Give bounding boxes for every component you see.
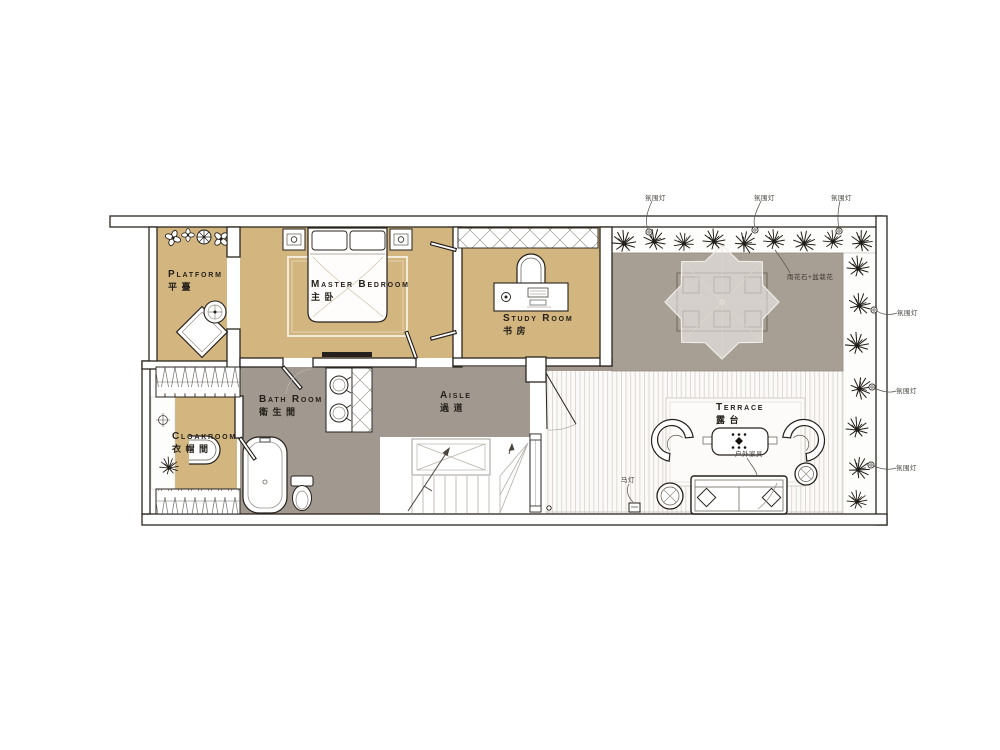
right-wall — [876, 216, 887, 525]
annotation-ambient-light: 氛围灯 — [896, 462, 917, 472]
room-name-zh: 书房 — [503, 326, 573, 336]
sink — [330, 404, 351, 422]
staircase — [408, 434, 551, 513]
platform-table — [204, 301, 226, 323]
left-wall-lower — [142, 361, 150, 514]
room-name-en: Terrace — [716, 403, 764, 413]
terrace-pillar — [526, 357, 546, 382]
storm-lantern — [629, 503, 640, 512]
bottom-wall — [142, 514, 887, 525]
room-name-zh: 露台 — [716, 415, 764, 425]
wardrobe-bottom — [156, 489, 240, 514]
annotation-pebbles-potted-flowers: 雨花石+盆栽花 — [787, 271, 833, 281]
room-label-master-bedroom: Master Bedroom 主卧 — [311, 280, 410, 302]
nightstand-right — [390, 229, 412, 250]
floor-plan-page: Platform 平臺 Master Bedroom 主卧 Study Room… — [0, 0, 1000, 750]
room-name-en: Study Room — [503, 314, 573, 324]
room-label-platform: Platform 平臺 — [168, 270, 223, 292]
annotation-ambient-light: 氛围灯 — [831, 192, 852, 202]
annotation-ambient-light: 氛围灯 — [896, 385, 917, 395]
room-label-bath-room: Bath Room 衛生間 — [259, 395, 323, 417]
room-name-zh: 平臺 — [168, 282, 223, 292]
door-stop — [547, 506, 551, 510]
room-name-zh: 過道 — [440, 403, 472, 413]
room-label-cloakroom: Cloakroom 衣帽間 — [172, 432, 237, 454]
left-wall-upper — [149, 227, 157, 368]
side-table-right — [795, 463, 817, 485]
sink — [330, 376, 351, 394]
wall-stub-b — [227, 329, 240, 368]
room-name-zh: 衣帽間 — [172, 444, 237, 454]
stair-railing — [530, 434, 541, 512]
bedroom-bottom-wall-left — [240, 358, 283, 367]
side-table-left — [657, 483, 683, 509]
toilet — [291, 476, 313, 511]
desk-chair — [517, 254, 545, 285]
room-name-en: Aisle — [440, 391, 472, 401]
outdoor-sofa — [691, 476, 787, 514]
annotation-outdoor-furniture: 户外家具 — [735, 448, 763, 458]
room-label-study-room: Study Room 书房 — [503, 314, 573, 336]
pillow — [312, 231, 347, 250]
nightstand-left — [283, 229, 305, 250]
room-label-terrace: Terrace 露台 — [716, 403, 764, 425]
annotation-storm-lantern: 马灯 — [621, 474, 635, 484]
room-label-aisle: Aisle 過道 — [440, 391, 472, 413]
study-right-wall — [600, 227, 612, 366]
annotation-ambient-light: 氛围灯 — [754, 192, 775, 202]
room-name-en: Platform — [168, 270, 223, 280]
wall-stub-a — [227, 227, 240, 257]
pillow — [350, 231, 385, 250]
room-name-en: Bath Room — [259, 395, 323, 405]
room-name-en: Master Bedroom — [311, 280, 410, 290]
room-name-en: Cloakroom — [172, 432, 237, 442]
annotation-ambient-light: 氛围灯 — [645, 192, 666, 202]
floor-plan-drawing — [0, 0, 1000, 750]
study-closet — [458, 228, 598, 248]
tv-console — [322, 352, 372, 357]
annotation-ambient-light: 氛围灯 — [897, 307, 918, 317]
bath-cabinet — [352, 368, 372, 432]
umbrella-dining-set — [665, 245, 779, 359]
room-name-zh: 衛生間 — [259, 407, 323, 417]
top-wall — [110, 216, 882, 227]
room-name-zh: 主卧 — [311, 292, 410, 302]
bedroom-bottom-wall-right — [313, 358, 416, 367]
